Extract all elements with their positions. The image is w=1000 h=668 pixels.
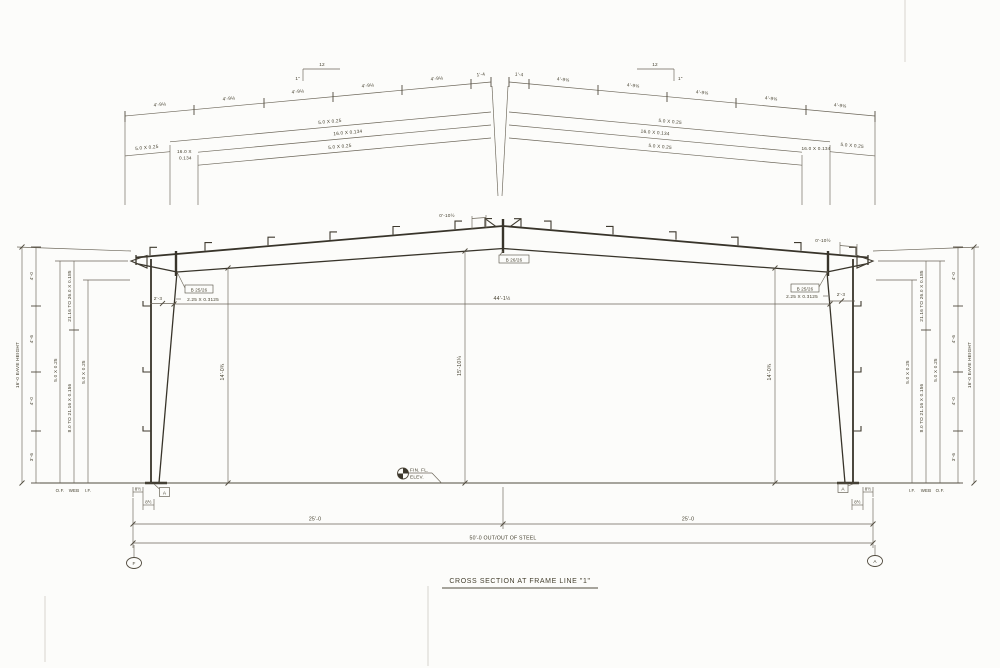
finish-floor-label-1: FIN. FL. bbox=[410, 468, 429, 473]
column-web-plate-upper: 21.16 TO 26.0 X 0.185 bbox=[67, 270, 72, 322]
knee-ref-right: B 25/26 bbox=[797, 287, 814, 292]
interior-height-center-dim: 15'-10¼ bbox=[457, 356, 463, 376]
rafter-detail-linework bbox=[125, 69, 875, 205]
eave-height-dim: 16'-0 EAVE HEIGHT bbox=[15, 342, 20, 388]
slope-run-label: 12 bbox=[319, 62, 325, 67]
finish-floor-symbol: FIN. FL. ELEV. bbox=[398, 468, 442, 483]
drawing-title-block: CROSS SECTION AT FRAME LINE "1" bbox=[442, 578, 598, 588]
eave-offset-dim: 0'-10½ bbox=[815, 237, 830, 243]
girt-clips bbox=[143, 301, 861, 431]
drawing-title: CROSS SECTION AT FRAME LINE "1" bbox=[449, 578, 590, 585]
rafter-seg-dim: 4'-9⅛ bbox=[696, 89, 709, 95]
web-abbrev: WEB bbox=[69, 488, 80, 493]
interior-height-right-dim: 14'-0¾ bbox=[767, 363, 773, 380]
column-outer-flange-plate: 5.0 X 0.25 bbox=[53, 358, 58, 382]
cross-section-drawing: 4'-9⅛ 4'-9⅛ 4'-9⅛ 4'-9⅛ 4'-9⅛ 1'-4 1'-4 … bbox=[0, 0, 1000, 668]
rafter-end-web-plate-l1: 16.0 X bbox=[177, 149, 192, 154]
rafter-end-flange-plate: 5.0 X 0.25 bbox=[135, 144, 159, 151]
anchor-offset-dim: 8½ bbox=[865, 487, 872, 492]
girt-spacing-dim: 3'-6 bbox=[951, 453, 956, 462]
grid-bubble-left: F bbox=[132, 561, 135, 566]
inner-flange-abbrev: I.F. bbox=[85, 488, 92, 493]
rafter-detail-labels: 4'-9⅛ 4'-9⅛ 4'-9⅛ 4'-9⅛ 4'-9⅛ 1'-4 1'-4 … bbox=[135, 62, 864, 161]
peak-ref: B 26/26 bbox=[506, 258, 523, 263]
girt-spacing-dim: 4'-0 bbox=[951, 397, 956, 406]
column-outer-flange-plate: 5.0 X 0.25 bbox=[933, 358, 938, 382]
column-inner-flange-plate: 5.0 X 0.25 bbox=[905, 360, 910, 384]
anchor-offset-dim: 8½ bbox=[145, 500, 152, 505]
bottom-dimensions: 25'-0 25'-0 50'-0 OUT/OUT OF STEEL F A bbox=[127, 487, 883, 569]
slope-rise-label: 1" bbox=[678, 76, 683, 81]
rafter-seg-end-dim: 1'-4 bbox=[515, 72, 524, 78]
eave-height-dim: 16'-0 EAVE HEIGHT bbox=[967, 342, 972, 388]
outer-flange-abbrev: O.F. bbox=[936, 488, 945, 493]
half-span-dim-right: 25'-0 bbox=[682, 517, 694, 523]
rafter-web-plate: 16.0 X 0.134 bbox=[640, 129, 670, 137]
knee-ref-left: B 25/26 bbox=[191, 288, 208, 293]
knee-stiffener-right: 2.25 X 0.3125 bbox=[786, 294, 818, 299]
slope-rise-label: 1" bbox=[295, 76, 300, 81]
girt-spacing-dim: 3'-6 bbox=[29, 453, 34, 462]
column-web-plate-lower: 8.0 TO 21.16 X 0.156 bbox=[67, 383, 72, 432]
girt-spacing-dim: 4'-6 bbox=[29, 335, 34, 344]
rafter-seg-dim: 4'-9⅛ bbox=[430, 75, 443, 81]
rafter-inner-flange-plate: 5.0 X 0.25 bbox=[648, 143, 672, 150]
frame-linework bbox=[131, 219, 873, 483]
rafter-outer-flange-plate: 5.0 X 0.25 bbox=[658, 118, 682, 125]
knee-width-right: 2'-3 bbox=[837, 292, 846, 297]
rafter-seg-dim: 4'-9⅛ bbox=[222, 95, 235, 101]
rafter-seg-dim: 4'-9⅛ bbox=[291, 88, 304, 94]
grid-bubble-right: A bbox=[873, 559, 877, 564]
rafter-seg-dim: 4'-9⅛ bbox=[834, 102, 847, 108]
rafter-seg-dim: 4'-9⅛ bbox=[361, 82, 374, 88]
anchor-offset-dim: 8½ bbox=[135, 487, 142, 492]
rafter-seg-dim: 4'-9⅛ bbox=[153, 101, 166, 107]
outer-flange-abbrev: O.F. bbox=[56, 488, 65, 493]
knee-stiffener-left: 2.25 X 0.3125 bbox=[187, 297, 219, 302]
rafter-outer-flange-plate: 5.0 X 0.25 bbox=[318, 118, 342, 125]
right-dimension-stack: 5.0 X 0.25 21.16 TO 26.0 X 0.185 8.0 TO … bbox=[873, 245, 979, 494]
rafter-end-flange-plate: 5.0 X 0.25 bbox=[840, 142, 864, 149]
girt-spacing-dim: 4'-0 bbox=[29, 272, 34, 281]
column-inner-flange-plate: 5.0 X 0.25 bbox=[81, 360, 86, 384]
anchor-offset-dim: 8½ bbox=[854, 500, 861, 505]
web-abbrev: WEB bbox=[921, 488, 932, 493]
overall-span-dim: 50'-0 OUT/OUT OF STEEL bbox=[470, 536, 537, 542]
rafter-end-web-plate: 16.0 X 0.134 bbox=[802, 146, 831, 151]
knee-width-left: 2'-3 bbox=[154, 296, 163, 301]
half-span-dim-left: 25'-0 bbox=[309, 517, 321, 523]
base-detail-ref: A bbox=[841, 487, 845, 492]
column-web-plate-upper: 21.16 TO 26.0 X 0.185 bbox=[919, 270, 924, 322]
girt-spacing-dim: 4'-0 bbox=[951, 272, 956, 281]
girt-spacing-dim: 4'-6 bbox=[951, 335, 956, 344]
peak-offset-dim: 0'-10½ bbox=[439, 212, 454, 218]
clear-width-dim: 44'-1½ bbox=[494, 295, 511, 302]
drawing-sheet: 4'-9⅛ 4'-9⅛ 4'-9⅛ 4'-9⅛ 4'-9⅛ 1'-4 1'-4 … bbox=[0, 0, 1000, 668]
rafter-seg-dim: 4'-9⅛ bbox=[557, 76, 570, 82]
finish-floor-label-2: ELEV. bbox=[410, 475, 424, 480]
left-dimension-stack: 16'-0 EAVE HEIGHT 4'-0 4'-6 4'-0 3'-6 5.… bbox=[15, 245, 131, 494]
rafter-seg-dim: 4'-9⅛ bbox=[627, 82, 640, 88]
girt-spacing-dim: 4'-0 bbox=[29, 397, 34, 406]
rafter-web-plate: 16.0 X 0.134 bbox=[333, 129, 363, 137]
slope-run-label: 12 bbox=[652, 62, 658, 67]
base-detail-ref: A bbox=[163, 491, 167, 496]
column-web-plate-lower: 8.0 TO 21.16 X 0.156 bbox=[919, 383, 924, 432]
rafter-end-web-plate-l2: 0.134 bbox=[179, 156, 192, 161]
rafter-seg-dim: 4'-9⅛ bbox=[765, 95, 778, 101]
interior-dimensions: 44'-1½ 14'-0¾ 15'-10¼ 14'-0¾ bbox=[172, 249, 833, 486]
rafter-inner-flange-plate: 5.0 X 0.25 bbox=[328, 143, 352, 150]
interior-height-left-dim: 14'-0¾ bbox=[220, 363, 226, 380]
rafter-seg-end-dim: 1'-4 bbox=[476, 72, 485, 78]
inner-flange-abbrev: I.F. bbox=[909, 488, 916, 493]
